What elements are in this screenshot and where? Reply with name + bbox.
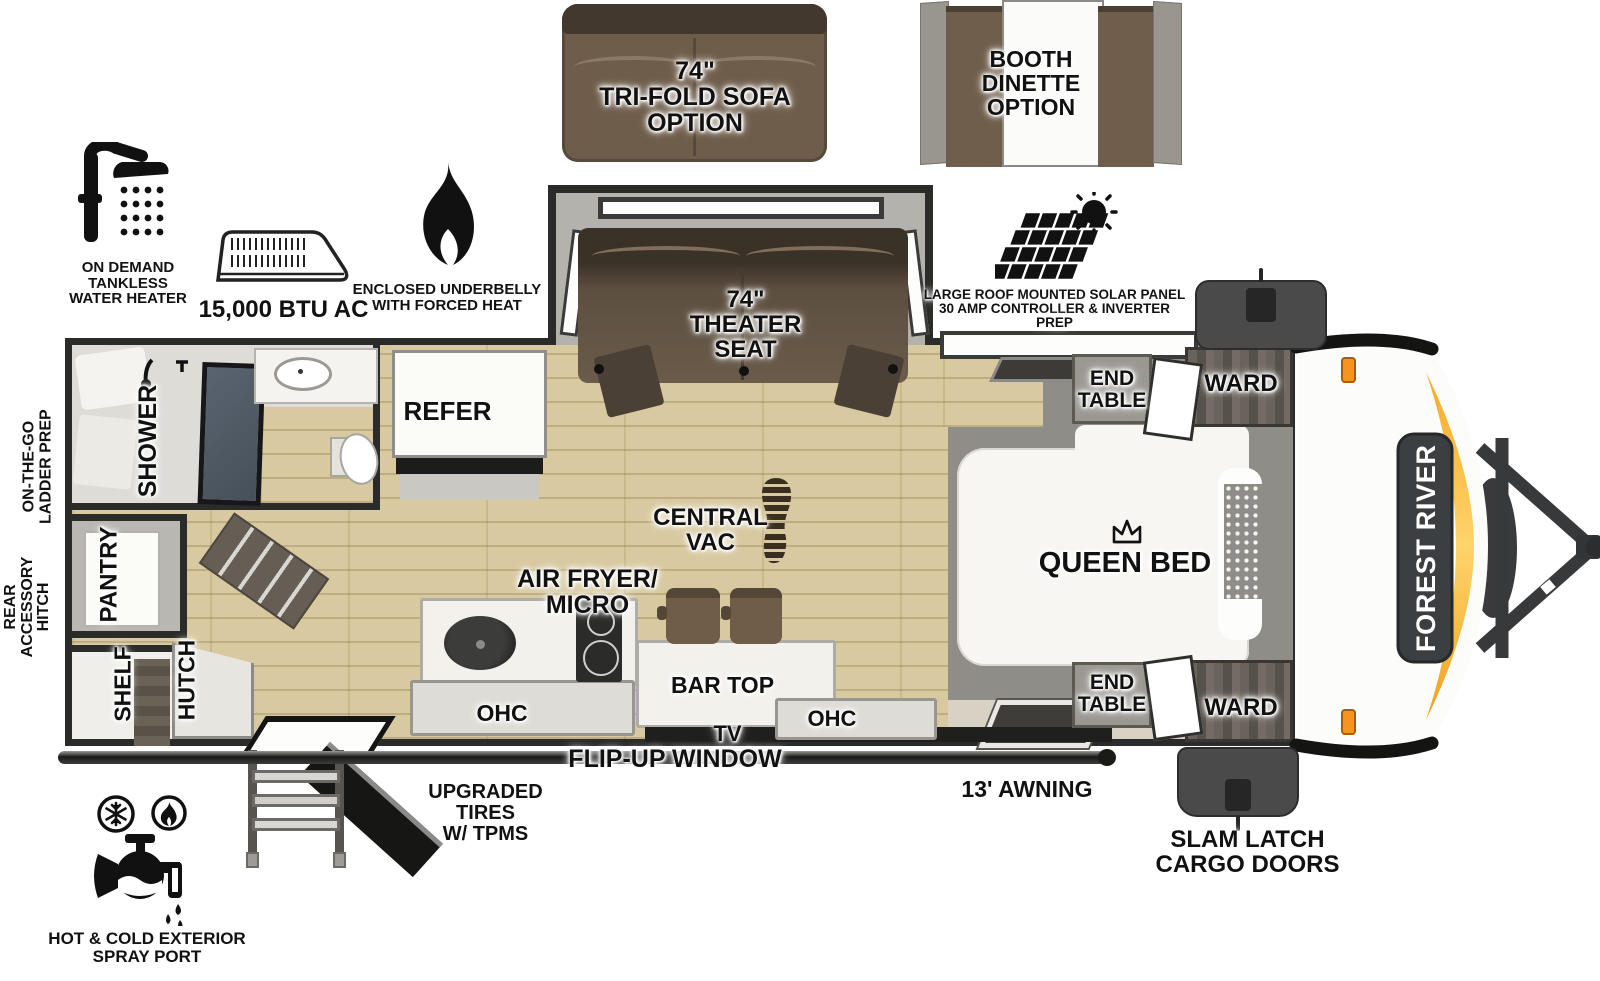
spray-port-icon <box>88 792 204 926</box>
seat-back-right <box>746 246 894 266</box>
underbelly-label: ENCLOSED UNDERBELLY WITH FORCED HEAT <box>352 282 542 313</box>
hitch-a-frame <box>1480 438 1586 658</box>
bedroom-top-window <box>940 331 1198 359</box>
stool-arm <box>721 606 731 620</box>
dinette-slab-left <box>920 1 949 165</box>
burner-large <box>583 640 619 676</box>
solar-label: LARGE ROOF MOUNTED SOLAR PANEL 30 AMP CO… <box>922 288 1187 330</box>
front-cap: FOREST RIVER <box>1280 330 1600 762</box>
headboard-perforated-panel <box>1224 484 1262 599</box>
sink-drain <box>298 369 303 374</box>
ac-label: 15,000 BTU AC <box>196 298 371 323</box>
bar-top-label: BAR TOP <box>660 674 785 698</box>
sofa-back <box>562 4 827 34</box>
ladder-prep-label: ON-THE-GO LADDER PREP <box>21 392 54 542</box>
cargo-latch-stem <box>1259 268 1263 282</box>
marker-light-top <box>1342 358 1355 382</box>
shelf-wood-divider <box>134 659 170 746</box>
slam-latch-label: SLAM LATCH CARGO DOORS <box>1130 828 1365 878</box>
kitchen-sink-drain <box>476 640 485 649</box>
refer-label: REFER <box>385 398 510 425</box>
pantry <box>72 514 187 638</box>
refrigerator-pedestal <box>400 474 539 500</box>
shower-bench <box>73 414 138 490</box>
wardrobe-top-label: WARD <box>1196 372 1286 397</box>
floorplan-canvas: 74" TRI-FOLD SOFA OPTION BOOTH DINETTE O… <box>0 0 1600 981</box>
theater-seat-label: 74" THEATER SEAT <box>658 288 833 363</box>
end-table-bottom-label: END TABLE <box>1068 672 1156 716</box>
dinette-bench-right <box>1098 6 1154 167</box>
bar-stool-2 <box>730 588 782 644</box>
upgraded-tires-label: UPGRADED TIRES W/ TPMS <box>398 782 573 844</box>
spray-port-label: HOT & COLD EXTERIOR SPRAY PORT <box>42 930 252 965</box>
awning-label: 13' AWNING <box>952 778 1102 802</box>
sink-basin <box>274 357 332 391</box>
wardrobe-bottom-label: WARD <box>1196 696 1286 721</box>
central-vac-label: CENTRAL VAC <box>648 506 773 556</box>
seat-cupholder-3 <box>888 364 898 374</box>
rear-hitch-label: REAR ACCESSORY HITCH <box>3 547 53 667</box>
shower-head-icon <box>78 142 178 254</box>
ac-unit-icon <box>212 228 354 290</box>
awning-bar-endcap <box>1098 749 1116 766</box>
cargo-door-top <box>1195 280 1327 350</box>
pantry-label: PANTRY <box>98 514 123 634</box>
flip-up-window-label: FLIP-UP WINDOW <box>560 746 790 772</box>
seat-cupholder-2 <box>739 366 749 376</box>
shelf-label: SHELF <box>112 626 136 741</box>
solar-panel-icon <box>995 192 1120 284</box>
seat-cupholder-1 <box>594 364 604 374</box>
snowflake-icon <box>107 803 126 825</box>
marker-light-bottom <box>1342 710 1355 734</box>
bathroom <box>72 345 380 510</box>
cargo-latch <box>1246 288 1276 322</box>
flame-icon <box>415 162 481 272</box>
queen-bed-label: QUEEN BED <box>1030 548 1220 578</box>
seat-back-left <box>592 246 740 266</box>
trifold-sofa-label: 74" TRI-FOLD SOFA OPTION <box>585 58 805 136</box>
entry-steps <box>248 750 344 870</box>
crown-icon <box>1110 517 1144 547</box>
booth-dinette-label: BOOTH DINETTE OPTION <box>966 48 1096 120</box>
hutch-label: HUTCH <box>176 622 200 737</box>
end-table-top-label: END TABLE <box>1068 368 1156 412</box>
ohc-right-label: OHC <box>792 708 872 731</box>
tv-label: TV <box>700 723 755 746</box>
flame-small-icon <box>161 801 177 826</box>
cargo-door-bottom <box>1177 747 1299 817</box>
air-fryer-label: AIR FRYER/ MICRO <box>500 566 675 618</box>
shower-label: SHOWER <box>135 381 161 501</box>
cargo-latch <box>1225 779 1251 811</box>
refrigerator-base <box>396 458 543 474</box>
water-heater-label: ON DEMAND TANKLESS WATER HEATER <box>38 260 218 307</box>
slideout-window <box>598 197 884 219</box>
dinette-slab-right <box>1153 1 1182 165</box>
ohc-left-label: OHC <box>462 702 542 726</box>
brand-text: FOREST RIVER <box>1411 444 1441 652</box>
